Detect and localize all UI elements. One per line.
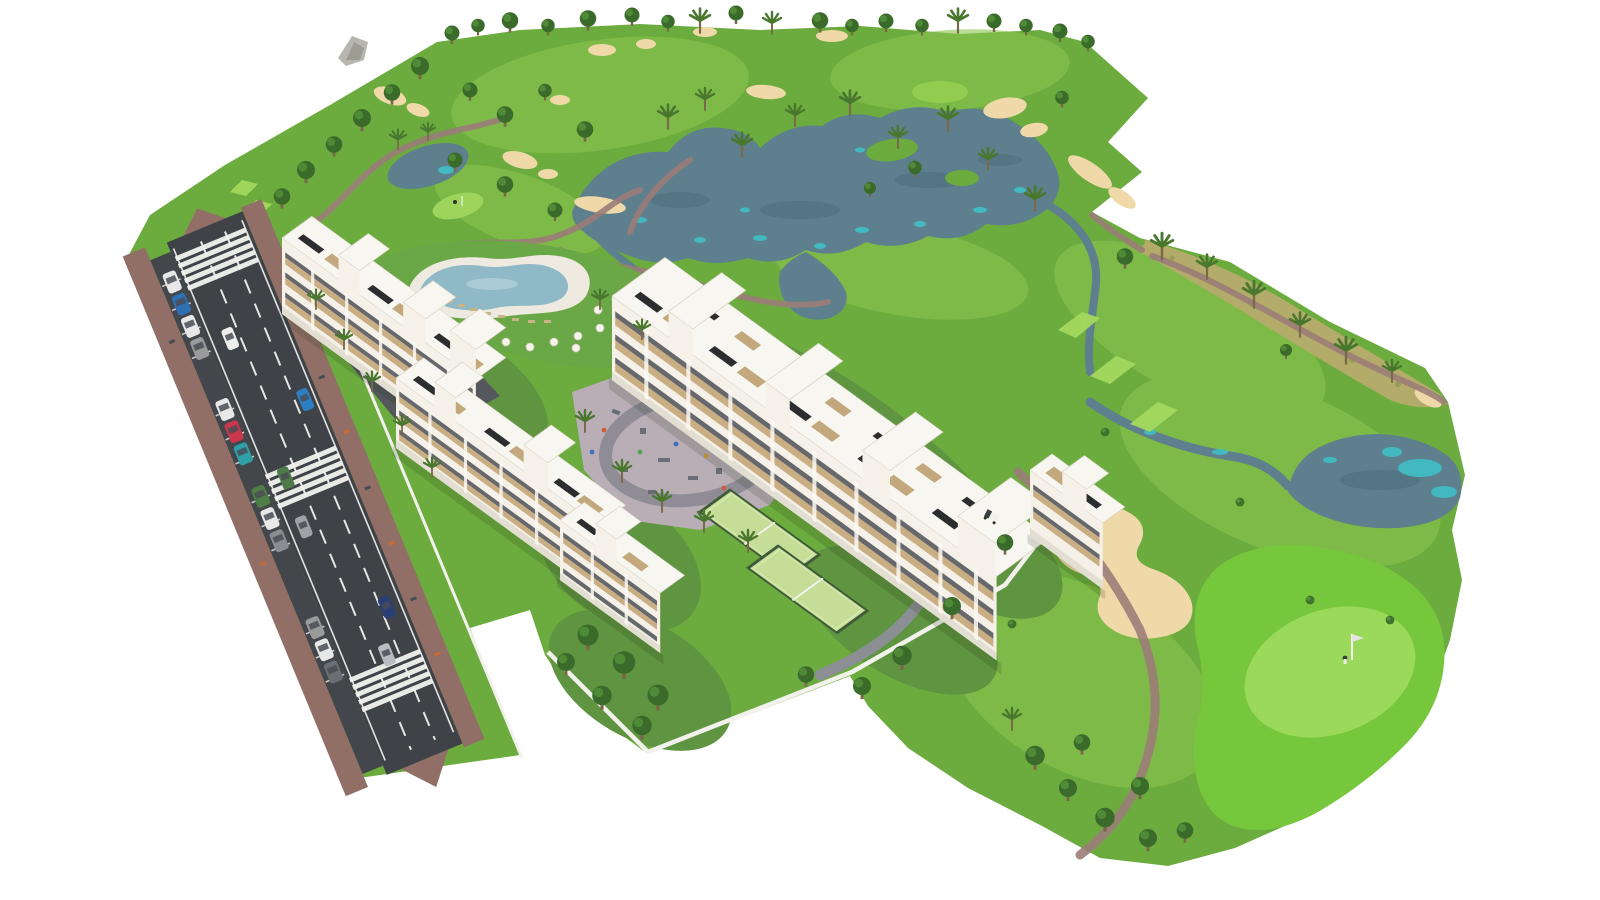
- tree-icon: [729, 6, 744, 25]
- lake-island: [945, 170, 979, 186]
- bush-icon: [1306, 596, 1315, 605]
- tree-icon: [471, 19, 485, 36]
- signature-green: [1193, 545, 1444, 830]
- tree-icon: [987, 14, 1002, 33]
- bush-icon: [1101, 428, 1110, 437]
- tree-icon: [625, 8, 640, 27]
- bush-icon: [1386, 616, 1395, 625]
- palm-icon: [948, 9, 968, 33]
- tree-icon: [502, 12, 519, 32]
- masterplan-illustration: [0, 0, 1600, 900]
- render-canvas: [0, 0, 1600, 900]
- bush-icon: [1008, 620, 1017, 629]
- pool-highlight: [466, 278, 518, 290]
- bush-icon: [1236, 498, 1245, 507]
